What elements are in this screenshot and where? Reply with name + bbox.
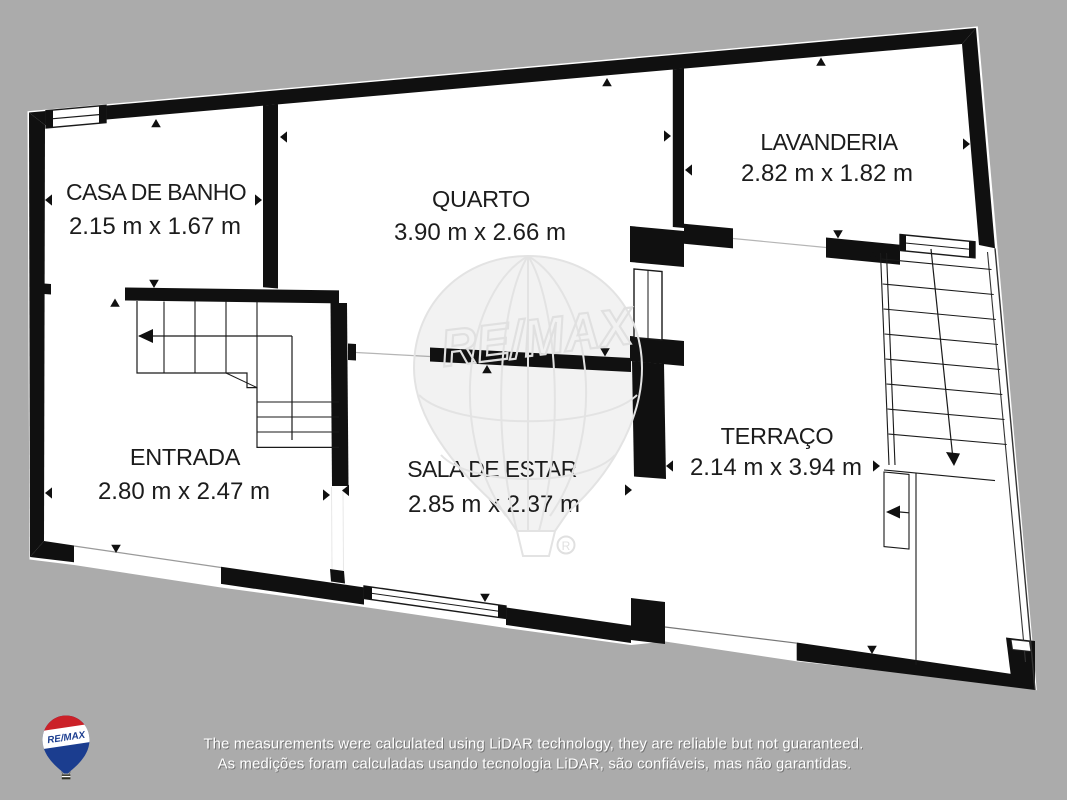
svg-text:TERRAÇO: TERRAÇO xyxy=(721,423,834,449)
svg-text:CASA DE BANHO: CASA DE BANHO xyxy=(66,179,246,205)
svg-text:As medições foram calculadas u: As medições foram calculadas usando tecn… xyxy=(218,757,852,773)
svg-text:LAVANDERIA: LAVANDERIA xyxy=(760,129,898,155)
svg-text:3.90 m x 2.66 m: 3.90 m x 2.66 m xyxy=(394,219,566,246)
svg-text:ENTRADA: ENTRADA xyxy=(130,444,241,470)
svg-text:2.82 m x 1.82 m: 2.82 m x 1.82 m xyxy=(741,160,913,187)
svg-text:QUARTO: QUARTO xyxy=(432,186,530,212)
svg-text:The measurements were calculat: The measurements were calculated using L… xyxy=(203,737,863,753)
svg-text:2.14 m x 3.94 m: 2.14 m x 3.94 m xyxy=(690,454,862,481)
svg-text:R: R xyxy=(562,539,571,553)
svg-text:2.15 m x 1.67 m: 2.15 m x 1.67 m xyxy=(69,213,241,240)
svg-text:2.80 m x 2.47 m: 2.80 m x 2.47 m xyxy=(98,478,270,505)
